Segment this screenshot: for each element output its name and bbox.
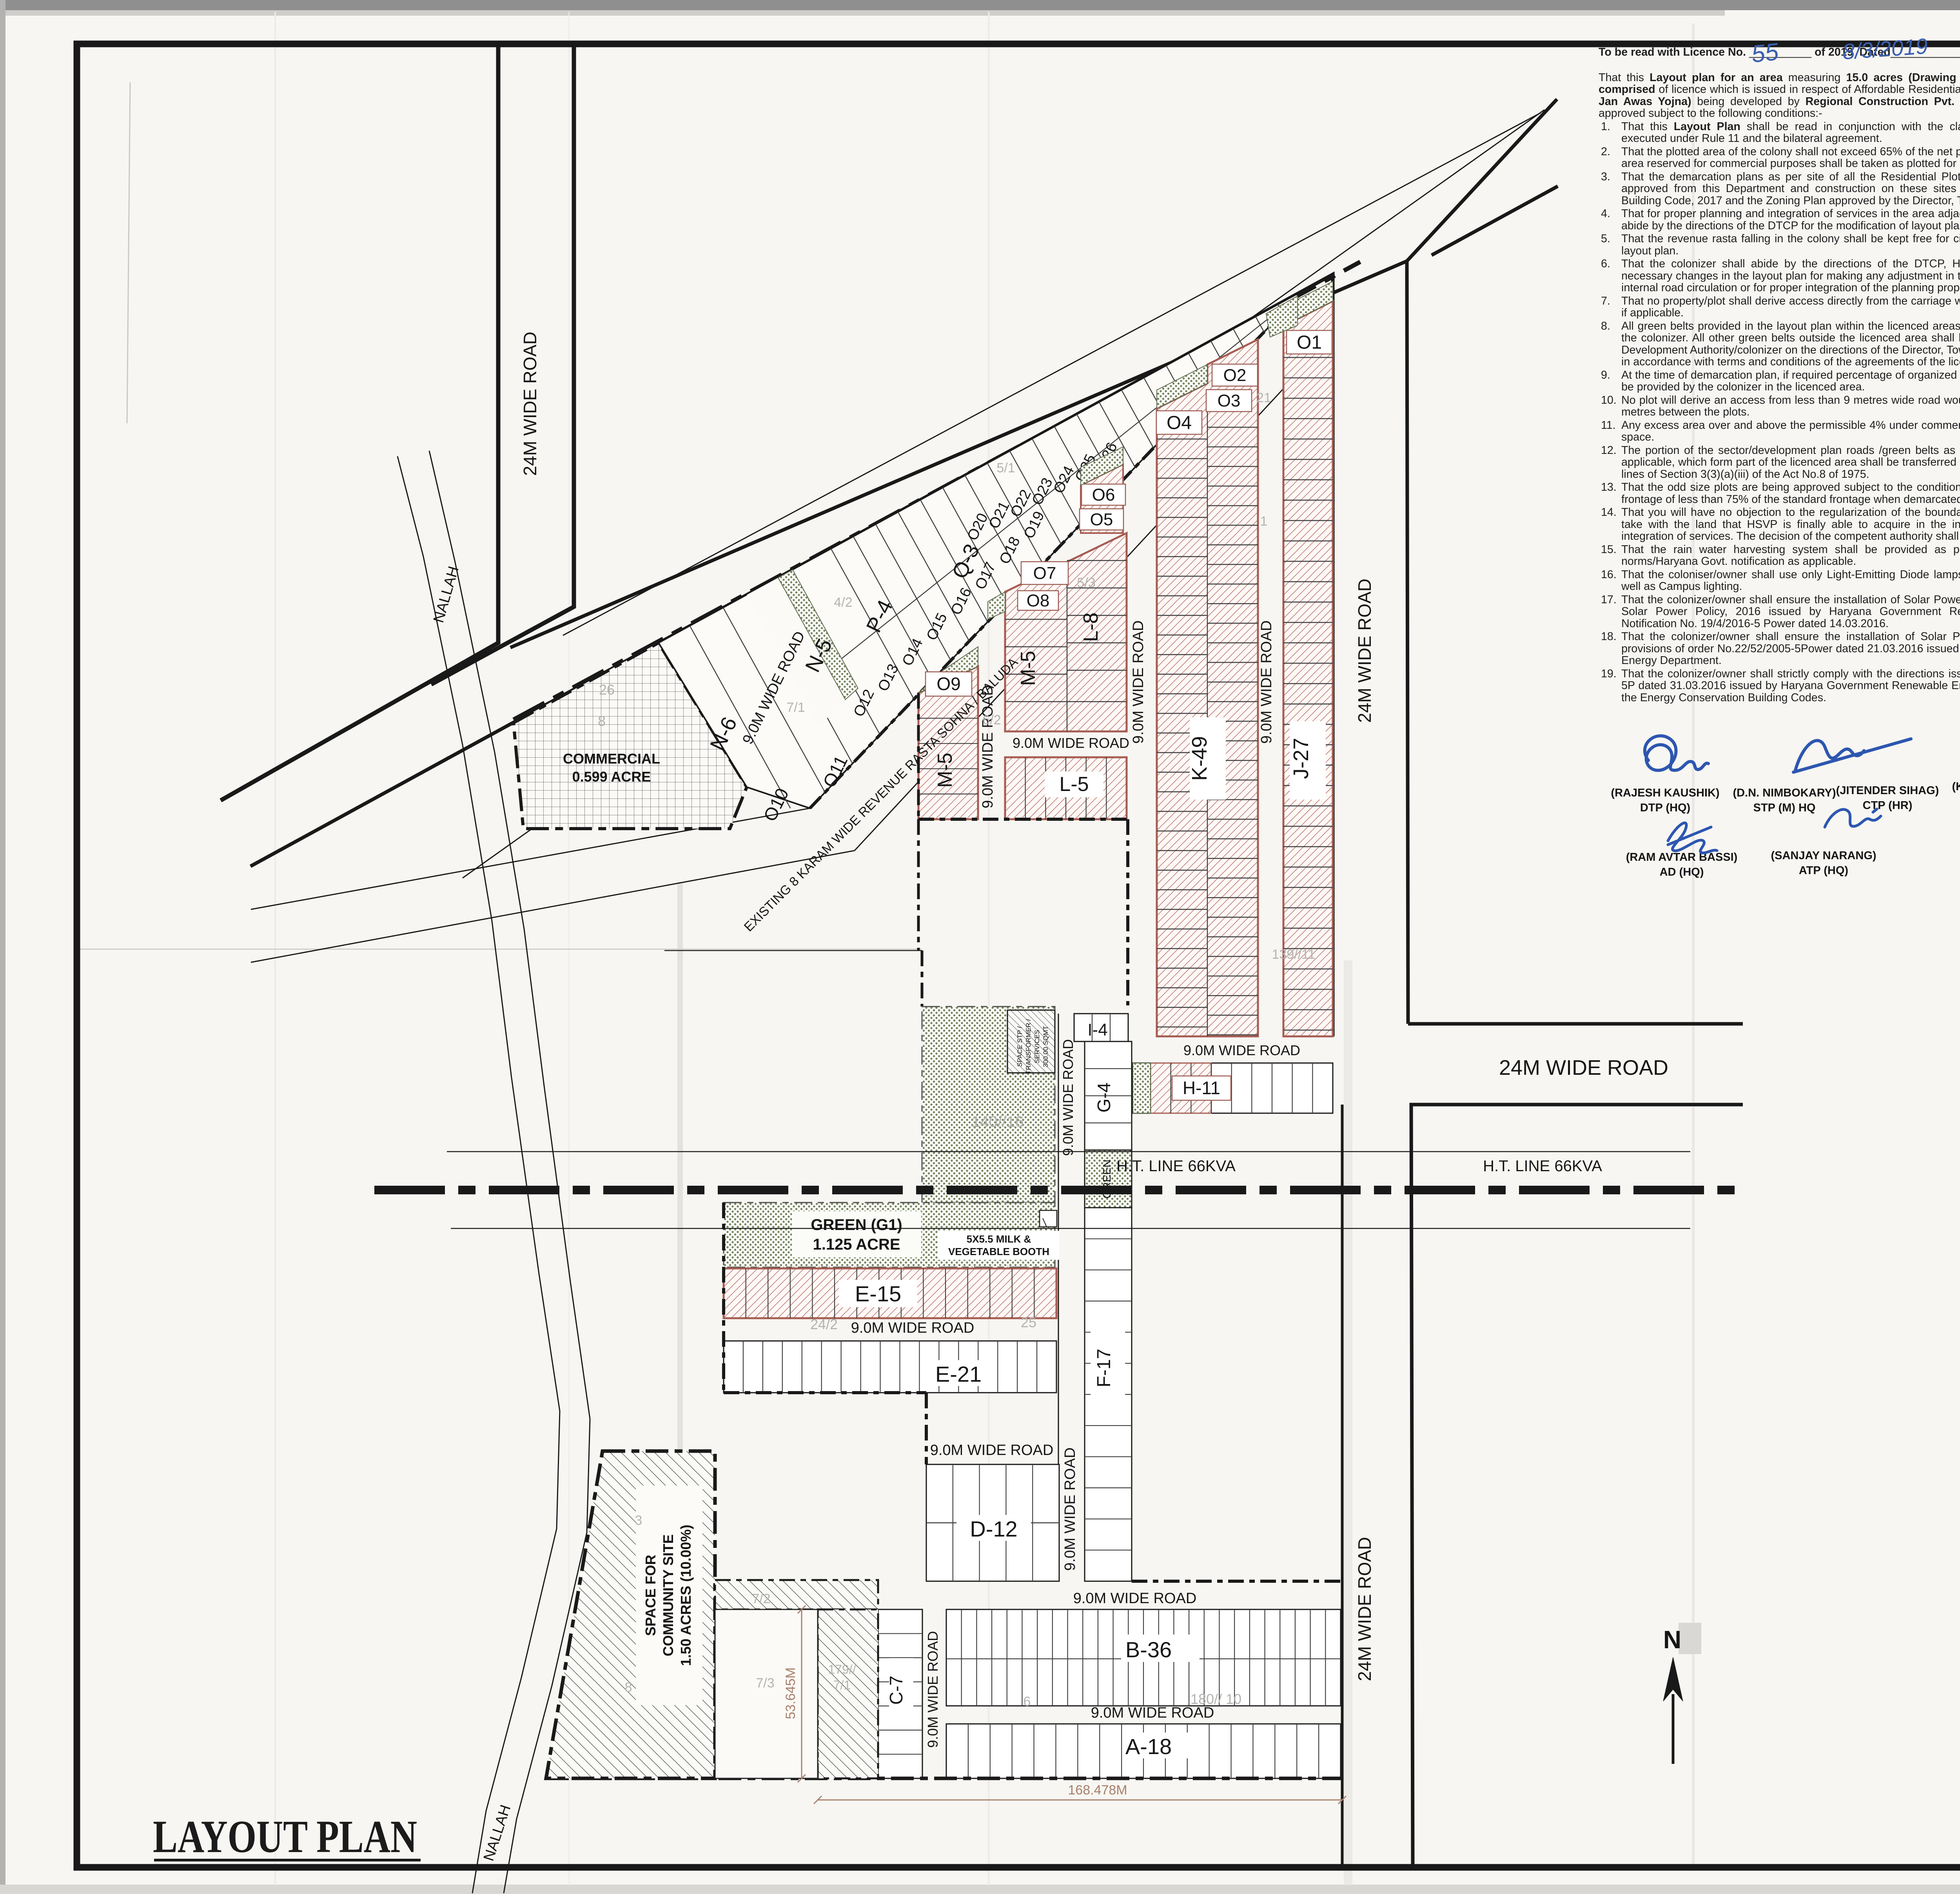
svg-text:168.478M: 168.478M bbox=[1068, 1783, 1127, 1798]
svg-text:7/2: 7/2 bbox=[752, 1591, 770, 1606]
svg-text:VEGETABLE BOOTH: VEGETABLE BOOTH bbox=[948, 1246, 1049, 1257]
svg-text:K-49: K-49 bbox=[1188, 736, 1211, 781]
svg-text:9.0M WIDE ROAD: 9.0M WIDE ROAD bbox=[1062, 1448, 1078, 1571]
svg-text:1.125 ACRE: 1.125 ACRE bbox=[813, 1236, 900, 1253]
svg-text:24M WIDE ROAD: 24M WIDE ROAD bbox=[1354, 1537, 1375, 1681]
svg-text:O4: O4 bbox=[1167, 412, 1192, 433]
svg-text:9.0M WIDE ROAD: 9.0M WIDE ROAD bbox=[1183, 1042, 1300, 1058]
svg-text:5/3: 5/3 bbox=[1077, 575, 1095, 590]
svg-text:O9: O9 bbox=[936, 674, 960, 694]
svg-text:E-21: E-21 bbox=[935, 1362, 982, 1386]
svg-text:H.T. LINE 66KVA: H.T. LINE 66KVA bbox=[1116, 1157, 1236, 1175]
svg-text:139//11: 139//11 bbox=[1272, 947, 1316, 962]
svg-text:O6: O6 bbox=[1092, 485, 1115, 504]
svg-text:4/2: 4/2 bbox=[834, 595, 852, 610]
svg-text:9.0M WIDE ROAD: 9.0M WIDE ROAD bbox=[1073, 1590, 1197, 1607]
svg-text:5X5.5 MILK &: 5X5.5 MILK & bbox=[967, 1233, 1031, 1245]
svg-text:140//16: 140//16 bbox=[971, 1113, 1024, 1130]
svg-text:TRANSFORMER /: TRANSFORMER / bbox=[1025, 1019, 1032, 1074]
svg-text:L-5: L-5 bbox=[1059, 773, 1089, 796]
svg-text:9.0M WIDE ROAD: 9.0M WIDE ROAD bbox=[930, 1442, 1054, 1459]
svg-text:O3: O3 bbox=[1218, 391, 1241, 410]
svg-text:6/2: 6/2 bbox=[982, 713, 1001, 727]
svg-text:53.645M: 53.645M bbox=[783, 1667, 798, 1719]
svg-text:8: 8 bbox=[598, 713, 606, 729]
svg-text:G-4: G-4 bbox=[1094, 1083, 1114, 1113]
svg-text:1: 1 bbox=[1260, 514, 1268, 529]
svg-text:D-12: D-12 bbox=[970, 1517, 1017, 1541]
svg-text:0.599 ACRE: 0.599 ACRE bbox=[572, 769, 651, 785]
svg-text:H-11: H-11 bbox=[1183, 1078, 1220, 1098]
svg-text:O5: O5 bbox=[1090, 510, 1113, 529]
svg-text:179//: 179// bbox=[828, 1662, 856, 1676]
svg-text:300.00 SQMT: 300.00 SQMT bbox=[1042, 1026, 1049, 1067]
svg-text:5/1: 5/1 bbox=[996, 461, 1015, 475]
svg-text:COMMERCIAL: COMMERCIAL bbox=[563, 751, 660, 767]
svg-text:O1: O1 bbox=[1297, 332, 1322, 353]
svg-text:7/3: 7/3 bbox=[756, 1676, 774, 1691]
svg-text:C-7: C-7 bbox=[886, 1676, 906, 1705]
svg-text:F-17: F-17 bbox=[1094, 1349, 1114, 1388]
svg-text:180// 10: 180// 10 bbox=[1191, 1691, 1241, 1707]
svg-text:25: 25 bbox=[1021, 1314, 1036, 1330]
svg-text:26: 26 bbox=[599, 682, 615, 698]
svg-text:9.0M WIDE ROAD: 9.0M WIDE ROAD bbox=[1091, 1705, 1214, 1721]
svg-text:7/1: 7/1 bbox=[833, 1678, 851, 1692]
svg-text:COMMUNITY SITE: COMMUNITY SITE bbox=[660, 1534, 676, 1656]
svg-text:N: N bbox=[1663, 1626, 1681, 1654]
svg-text:8: 8 bbox=[625, 1680, 632, 1695]
svg-text:O7: O7 bbox=[1033, 564, 1056, 583]
svg-text:9.0M WIDE ROAD: 9.0M WIDE ROAD bbox=[851, 1320, 975, 1336]
svg-text:J-27: J-27 bbox=[1289, 738, 1313, 779]
svg-text:9.0M WIDE ROAD: 9.0M WIDE ROAD bbox=[1130, 620, 1147, 744]
svg-text:24M WIDE ROAD: 24M WIDE ROAD bbox=[1354, 579, 1375, 723]
svg-text:O2: O2 bbox=[1223, 366, 1247, 385]
svg-text:9.0M WIDE ROAD: 9.0M WIDE ROAD bbox=[1013, 735, 1129, 751]
svg-text:3: 3 bbox=[635, 1513, 642, 1528]
svg-text:24M WIDE ROAD: 24M WIDE ROAD bbox=[1499, 1056, 1668, 1079]
svg-text:B-36: B-36 bbox=[1125, 1637, 1172, 1662]
svg-text:O8: O8 bbox=[1027, 591, 1050, 610]
svg-text:9.0M WIDE ROAD: 9.0M WIDE ROAD bbox=[1060, 1039, 1076, 1156]
svg-text:M-5: M-5 bbox=[934, 753, 956, 788]
svg-text:24/2: 24/2 bbox=[810, 1316, 838, 1332]
svg-text:21: 21 bbox=[1256, 390, 1271, 405]
svg-text:6: 6 bbox=[1024, 1694, 1031, 1709]
svg-text:H.T. LINE 66KVA: H.T. LINE 66KVA bbox=[1483, 1157, 1602, 1175]
svg-text:SPACE FOR: SPACE FOR bbox=[642, 1555, 659, 1636]
svg-text:9.0M WIDE ROAD: 9.0M WIDE ROAD bbox=[925, 1631, 941, 1748]
svg-text:A-18: A-18 bbox=[1125, 1734, 1172, 1759]
svg-text:9.0M WIDE ROAD: 9.0M WIDE ROAD bbox=[980, 685, 996, 809]
svg-text:9.0M WIDE ROAD: 9.0M WIDE ROAD bbox=[1258, 620, 1275, 744]
svg-text:M-5: M-5 bbox=[1017, 651, 1040, 686]
svg-text:L-8: L-8 bbox=[1080, 612, 1102, 642]
svg-text:NALLAH: NALLAH bbox=[430, 564, 462, 625]
svg-text:GREEN (G1): GREEN (G1) bbox=[811, 1216, 902, 1234]
svg-text:SPACE STP /: SPACE STP / bbox=[1016, 1026, 1024, 1067]
svg-text:24M WIDE ROAD: 24M WIDE ROAD bbox=[520, 332, 540, 476]
svg-text:7/1: 7/1 bbox=[786, 700, 805, 715]
svg-text:1.50 ACRES (10.00%): 1.50 ACRES (10.00%) bbox=[678, 1525, 694, 1666]
svg-text:SERVICES: SERVICES bbox=[1033, 1030, 1041, 1063]
svg-text:E-15: E-15 bbox=[855, 1281, 901, 1306]
svg-text:I-4: I-4 bbox=[1087, 1020, 1107, 1040]
